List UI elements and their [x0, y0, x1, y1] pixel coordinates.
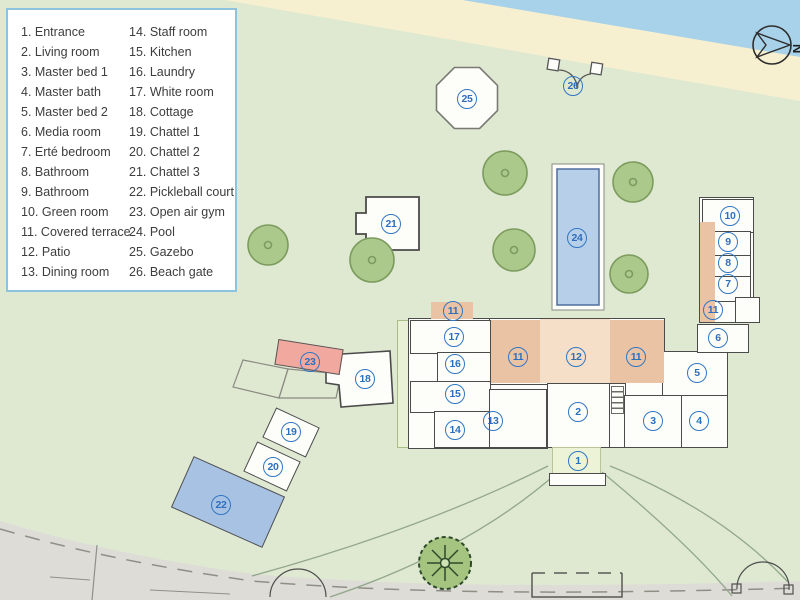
marker-3: 3: [643, 411, 663, 431]
legend-item-9: 9. Bathroom: [21, 182, 129, 202]
marker-11: 11: [443, 301, 463, 321]
legend-item-5: 5. Master bed 2: [21, 102, 129, 122]
legend-item-10: 10. Green room: [21, 202, 129, 222]
marker-8: 8: [718, 253, 738, 273]
legend-item-3: 3. Master bed 1: [21, 62, 129, 82]
marker-19: 19: [281, 422, 301, 442]
legend-item-25: 25. Gazebo: [129, 242, 234, 262]
legend-item-8: 8. Bathroom: [21, 162, 129, 182]
marker-9: 9: [718, 232, 738, 252]
legend-item-21: 21. Chattel 3: [129, 162, 234, 182]
marker-11-4: 11: [703, 300, 723, 320]
site-plan: N 12345678910111111111213141516171819202…: [0, 0, 800, 600]
marker-11-3: 11: [626, 347, 646, 367]
marker-14: 14: [445, 420, 465, 440]
marker-26: 26: [563, 76, 583, 96]
marker-21: 21: [381, 214, 401, 234]
marker-2: 2: [568, 402, 588, 422]
legend-list: 1. Entrance2. Living room3. Master bed 1…: [21, 22, 225, 282]
legend-item-22: 22. Pickleball court: [129, 182, 234, 202]
legend-item-12: 12. Patio: [21, 242, 129, 262]
legend-item-2: 2. Living room: [21, 42, 129, 62]
legend-item-19: 19. Chattel 1: [129, 122, 234, 142]
marker-11-2: 11: [508, 347, 528, 367]
legend-item-26: 26. Beach gate: [129, 262, 234, 282]
marker-24: 24: [567, 228, 587, 248]
legend-item-16: 16. Laundry: [129, 62, 234, 82]
legend-item-13: 13. Dining room: [21, 262, 129, 282]
legend-item-24: 24. Pool: [129, 222, 234, 242]
marker-4: 4: [689, 411, 709, 431]
legend-item-4: 4. Master bath: [21, 82, 129, 102]
marker-10: 10: [720, 206, 740, 226]
marker-22: 22: [211, 495, 231, 515]
legend-box: 1. Entrance2. Living room3. Master bed 1…: [6, 8, 237, 292]
marker-23: 23: [300, 352, 320, 372]
marker-12: 12: [566, 347, 586, 367]
marker-15: 15: [445, 384, 465, 404]
marker-18: 18: [355, 369, 375, 389]
legend-item-15: 15. Kitchen: [129, 42, 234, 62]
legend-item-17: 17. White room: [129, 82, 234, 102]
legend-item-1: 1. Entrance: [21, 22, 129, 42]
legend-item-20: 20. Chattel 2: [129, 142, 234, 162]
legend-item-6: 6. Media room: [21, 122, 129, 142]
legend-item-23: 23. Open air gym: [129, 202, 234, 222]
legend-item-11: 11. Covered terrace: [21, 222, 129, 242]
legend-item-7: 7. Erté bedroom: [21, 142, 129, 162]
legend-item-14: 14. Staff room: [129, 22, 234, 42]
marker-1: 1: [568, 451, 588, 471]
marker-20: 20: [263, 457, 283, 477]
marker-16: 16: [445, 354, 465, 374]
marker-25: 25: [457, 89, 477, 109]
marker-6: 6: [708, 328, 728, 348]
marker-17: 17: [444, 327, 464, 347]
marker-7: 7: [718, 274, 738, 294]
legend-item-18: 18. Cottage: [129, 102, 234, 122]
marker-5: 5: [687, 363, 707, 383]
marker-13: 13: [483, 411, 503, 431]
